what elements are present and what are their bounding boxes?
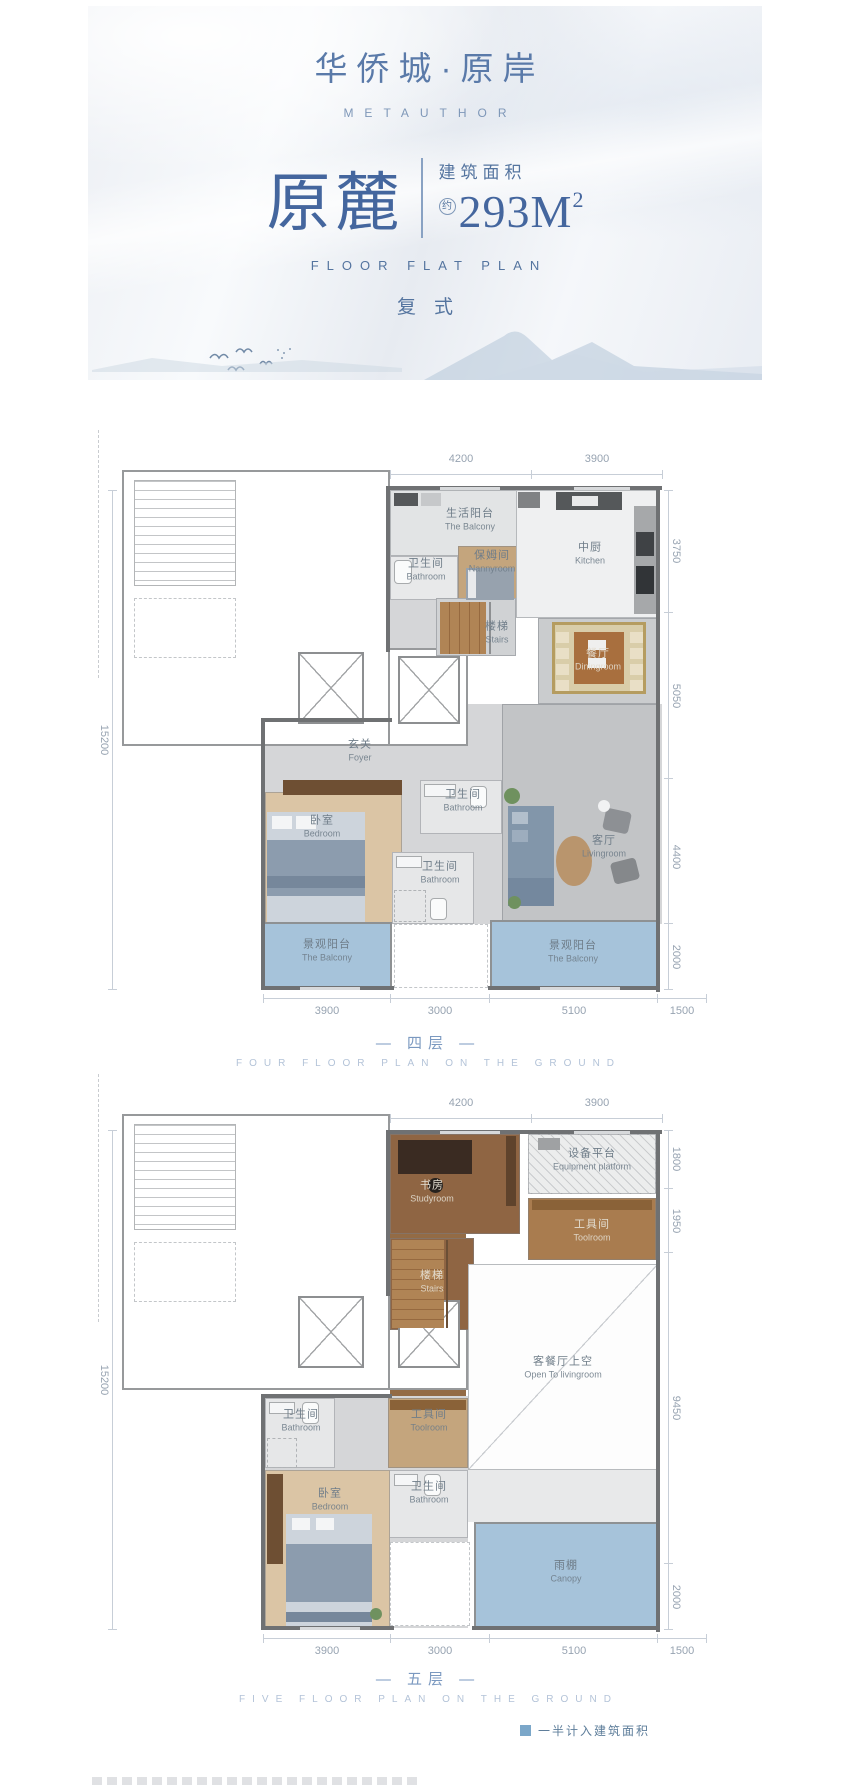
public-stairs [134,1124,236,1230]
label-stairs: 楼梯Stairs [485,621,509,646]
dim-left-1: 15200 [98,1365,110,1396]
mountains-icon [424,314,762,380]
label-bedroom: 卧室Bedroom [312,1488,349,1513]
dim-line [668,1130,669,1630]
label-study: 书房Studyroom [410,1180,454,1205]
label-canopy: 雨棚Canopy [550,1560,581,1585]
stair-landing [134,1242,236,1302]
window [540,987,620,990]
dim-right-2: 5050 [670,684,682,708]
open-gap [390,1542,470,1626]
cushion [512,830,528,842]
dim-tick [664,1252,673,1253]
dim-bottom-1: 3900 [315,1645,339,1657]
public-stairs [134,480,236,586]
wall [656,486,660,992]
label-dining: 餐厅Diningroom [575,648,621,673]
brand-logo-en: METAUTHOR [88,106,762,120]
label-toolroom: 工具间Toolroom [573,1219,610,1244]
washer-icon [394,493,418,506]
oven-icon [636,532,654,556]
legend-label: 一半计入建筑面积 [538,1722,650,1739]
dim-tick [664,1563,673,1564]
floor-lamp-icon [598,800,610,812]
dim-left-1: 15200 [98,725,110,756]
dim-right-2: 1950 [670,1209,682,1233]
plant-icon [370,1608,382,1620]
wardrobe [267,1474,283,1564]
range-hood [518,492,540,508]
floor4-caption-cn: — 四层 — [0,1032,850,1053]
bed-throw [267,876,365,888]
window [300,987,360,990]
dim-line [390,1118,663,1119]
dim-tick [531,470,532,479]
floor5-caption-en: FIVE FLOOR PLAN ON THE GROUND [0,1694,850,1705]
label-bathroom: 卫生间Bathroom [406,558,445,583]
area-block: 建筑面积 约293M2 [439,158,584,238]
dryer-icon [421,493,441,506]
dim-bottom-2: 3000 [428,1005,452,1017]
plan-type-en: FLOOR FLAT PLAN [88,258,762,273]
title-divider [421,158,423,238]
wardrobe [283,780,402,795]
dim-tick [390,994,391,1003]
blanket [286,1544,372,1602]
desk [398,1140,472,1174]
elevator-shaft [398,656,460,724]
window [440,487,500,490]
pillow [272,816,292,829]
area-value-line: 约293M2 [439,214,584,231]
dim-line [390,474,663,475]
legend-square-icon [520,1725,531,1736]
label-toolroom: 工具间Toolroom [410,1409,447,1434]
area-number: 293M [459,186,573,237]
elevator-shaft [298,652,364,724]
wall [656,1130,660,1632]
mountain-ridge-icon [92,350,402,372]
hero-banner: 华侨城·原岸 METAUTHOR 原麓 建筑面积 约293M2 FLOOR FL… [88,6,762,380]
dim-tick [657,1634,658,1643]
cropped-text-row [92,1777,422,1785]
label-balcony: 景观阳台The Balcony [302,939,352,964]
window [300,1627,360,1630]
bed-bench [286,1612,372,1622]
unit-name: 原麓 [267,152,405,244]
neighbor-outline [98,430,99,678]
bookshelf [506,1136,516,1206]
wall [386,1130,390,1296]
label-stairs: 楼梯Stairs [420,1270,444,1295]
dim-bottom-4: 1500 [670,1005,694,1017]
label-kitchen: 中厨Kitchen [575,542,605,567]
dim-tick [664,778,673,779]
dim-right-4: 2000 [670,945,682,969]
dining-chairs [630,632,643,696]
dim-right-3: 4400 [670,845,682,869]
dim-bottom-1: 3900 [315,1005,339,1017]
dim-tick [664,923,673,924]
dim-tick [489,994,490,1003]
label-nanny: 保姆间Nannyroom [469,550,516,575]
shower-area [267,1438,297,1468]
dim-tick [531,1114,532,1123]
dim-right-3: 9450 [670,1396,682,1420]
dim-tick [664,612,673,613]
stair-landing [134,598,236,658]
fridge-icon [636,566,654,594]
pillow [316,1518,334,1530]
floor4-caption-en: FOUR FLOOR PLAN ON THE GROUND [0,1058,850,1069]
stair-rail [446,1240,448,1328]
sink-icon [396,856,422,868]
dim-top-2: 3900 [585,1097,609,1109]
dim-top-1: 4200 [449,453,473,465]
plant-icon [508,896,521,909]
sink-icon [572,496,598,506]
window [440,1131,500,1134]
plant-icon [504,788,520,804]
area-exponent: 2 [572,187,583,212]
label-bathroom: 卫生间Bathroom [420,861,459,886]
neighbor-outline [98,1074,99,1322]
dim-line [112,490,113,990]
dim-bottom-3: 5100 [562,1005,586,1017]
wall [261,1394,392,1398]
window [574,487,630,490]
terrace-floor [468,1470,658,1522]
label-bathroom: 卫生间Bathroom [281,1409,320,1434]
dim-top-1: 4200 [449,1097,473,1109]
dim-tick [657,994,658,1003]
legend-row: 一半计入建筑面积 [420,1722,650,1739]
dim-bottom-2: 3000 [428,1645,452,1657]
dim-line [263,998,707,999]
appliance-column [634,506,656,614]
dim-line [668,490,669,990]
elevator-shaft [298,1296,364,1368]
toilet-icon [430,898,447,920]
wall [261,1394,265,1630]
dim-line [263,1638,707,1639]
label-living: 客厅Livingroom [582,835,626,860]
label-balcony: 景观阳台The Balcony [548,940,598,965]
area-label: 建筑面积 [439,158,584,183]
dim-tick [664,1188,673,1189]
dim-right-1: 1800 [670,1147,682,1171]
dim-tick [390,1634,391,1643]
floor5-caption-cn: — 五层 — [0,1668,850,1689]
open-gap [394,924,488,988]
shower-area [394,890,426,922]
dining-chairs [556,632,569,696]
wall [472,1626,660,1630]
label-foyer: 玄关Foyer [348,739,372,764]
tool-shelf [532,1200,652,1210]
poster-page: 华侨城·原岸 METAUTHOR 原麓 建筑面积 约293M2 FLOOR FL… [0,0,850,1788]
label-service-balcony: 生活阳台The Balcony [445,508,495,533]
label-void: 客餐厅上空Open To livingroom [524,1356,601,1381]
label-bedroom: 卧室Bedroom [304,815,341,840]
stair-steps [440,602,486,654]
approx-badge: 约 [439,198,456,215]
label-bathroom: 卫生间Bathroom [443,789,482,814]
wall [386,486,390,652]
label-equipment: 设备平台Equipment platform [553,1148,631,1173]
dim-top-2: 3900 [585,453,609,465]
cushion [512,812,528,824]
title-row: 原麓 建筑面积 约293M2 [88,152,762,244]
dim-tick [489,1634,490,1643]
pillow [292,1518,310,1530]
dim-line [112,1130,113,1630]
dim-right-4: 2000 [670,1585,682,1609]
wall [261,718,265,990]
dim-bottom-4: 1500 [670,1645,694,1657]
window [574,1131,630,1134]
dim-right-1: 3750 [670,539,682,563]
dim-bottom-3: 5100 [562,1645,586,1657]
label-bathroom: 卫生间Bathroom [409,1481,448,1506]
brand-logo: 华侨城·原岸 [88,42,762,90]
wall [261,718,392,722]
